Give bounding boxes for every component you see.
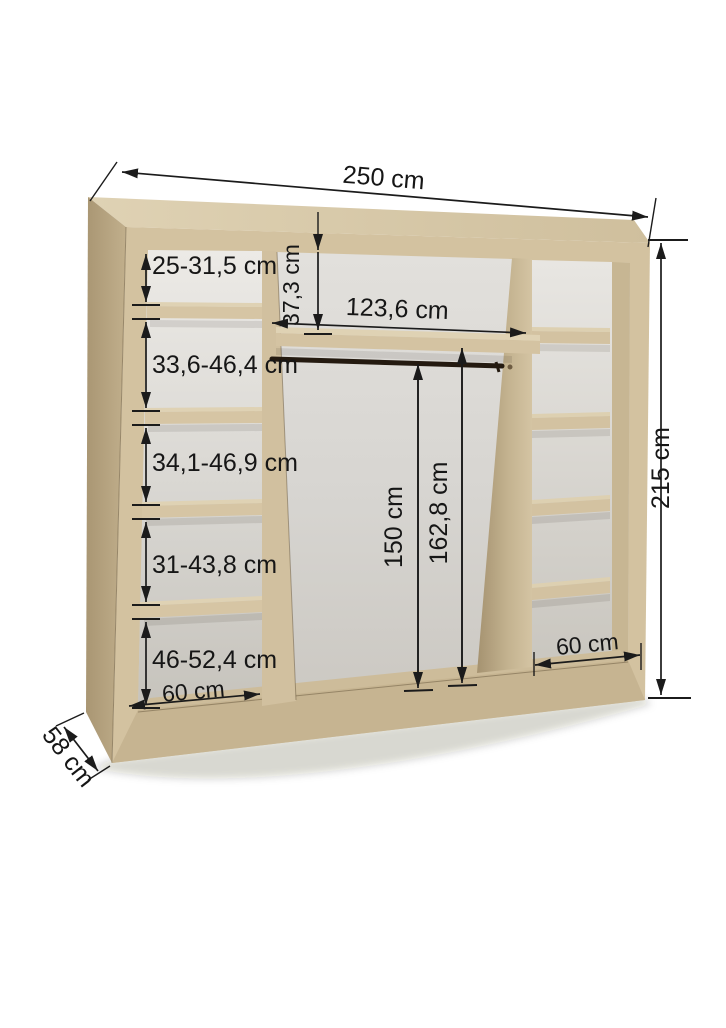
- gap-label-1: 25-31,5 cm: [152, 252, 277, 280]
- shelf-shadow: [532, 344, 610, 352]
- wardrobe-body: [86, 197, 650, 763]
- gap-label-2: 33,6-46,4 cm: [152, 351, 298, 379]
- gap-label-5: 46-52,4 cm: [152, 646, 277, 674]
- dimension-overall-height: 215 cm: [647, 240, 691, 698]
- dimension-label-left-width: 60 cm: [161, 675, 226, 706]
- shelf-front: [145, 411, 262, 424]
- gap-label-3: 34,1-46,9 cm: [152, 449, 298, 477]
- extension-line: [90, 162, 117, 201]
- gap-label-4: 31-43,8 cm: [152, 551, 277, 579]
- right-inner-wall: [612, 262, 630, 660]
- shelf-shadow: [150, 320, 262, 328]
- dimension-label-middle-width: 123,6 cm: [345, 293, 449, 325]
- shelf-front: [532, 416, 610, 430]
- dimension-label-middle-height: 162,8 cm: [425, 462, 453, 565]
- wardrobe-diagram: 250 cm 215 cm 58 cm: [0, 0, 726, 1028]
- shelf-front: [147, 306, 262, 319]
- dimension-label-overall-height: 215 cm: [647, 427, 675, 509]
- floor-tick: [404, 690, 433, 691]
- shelf-front: [532, 331, 610, 344]
- shelf-shadow: [148, 424, 262, 432]
- diagram-canvas: 250 cm 215 cm 58 cm: [0, 0, 726, 1028]
- dimension-label-overall-width: 250 cm: [342, 161, 426, 196]
- dimension-label-middle-top-gap: 37,3 cm: [278, 244, 304, 326]
- floor-tick: [448, 685, 477, 686]
- dimension-label-rail-height: 150 cm: [380, 486, 408, 568]
